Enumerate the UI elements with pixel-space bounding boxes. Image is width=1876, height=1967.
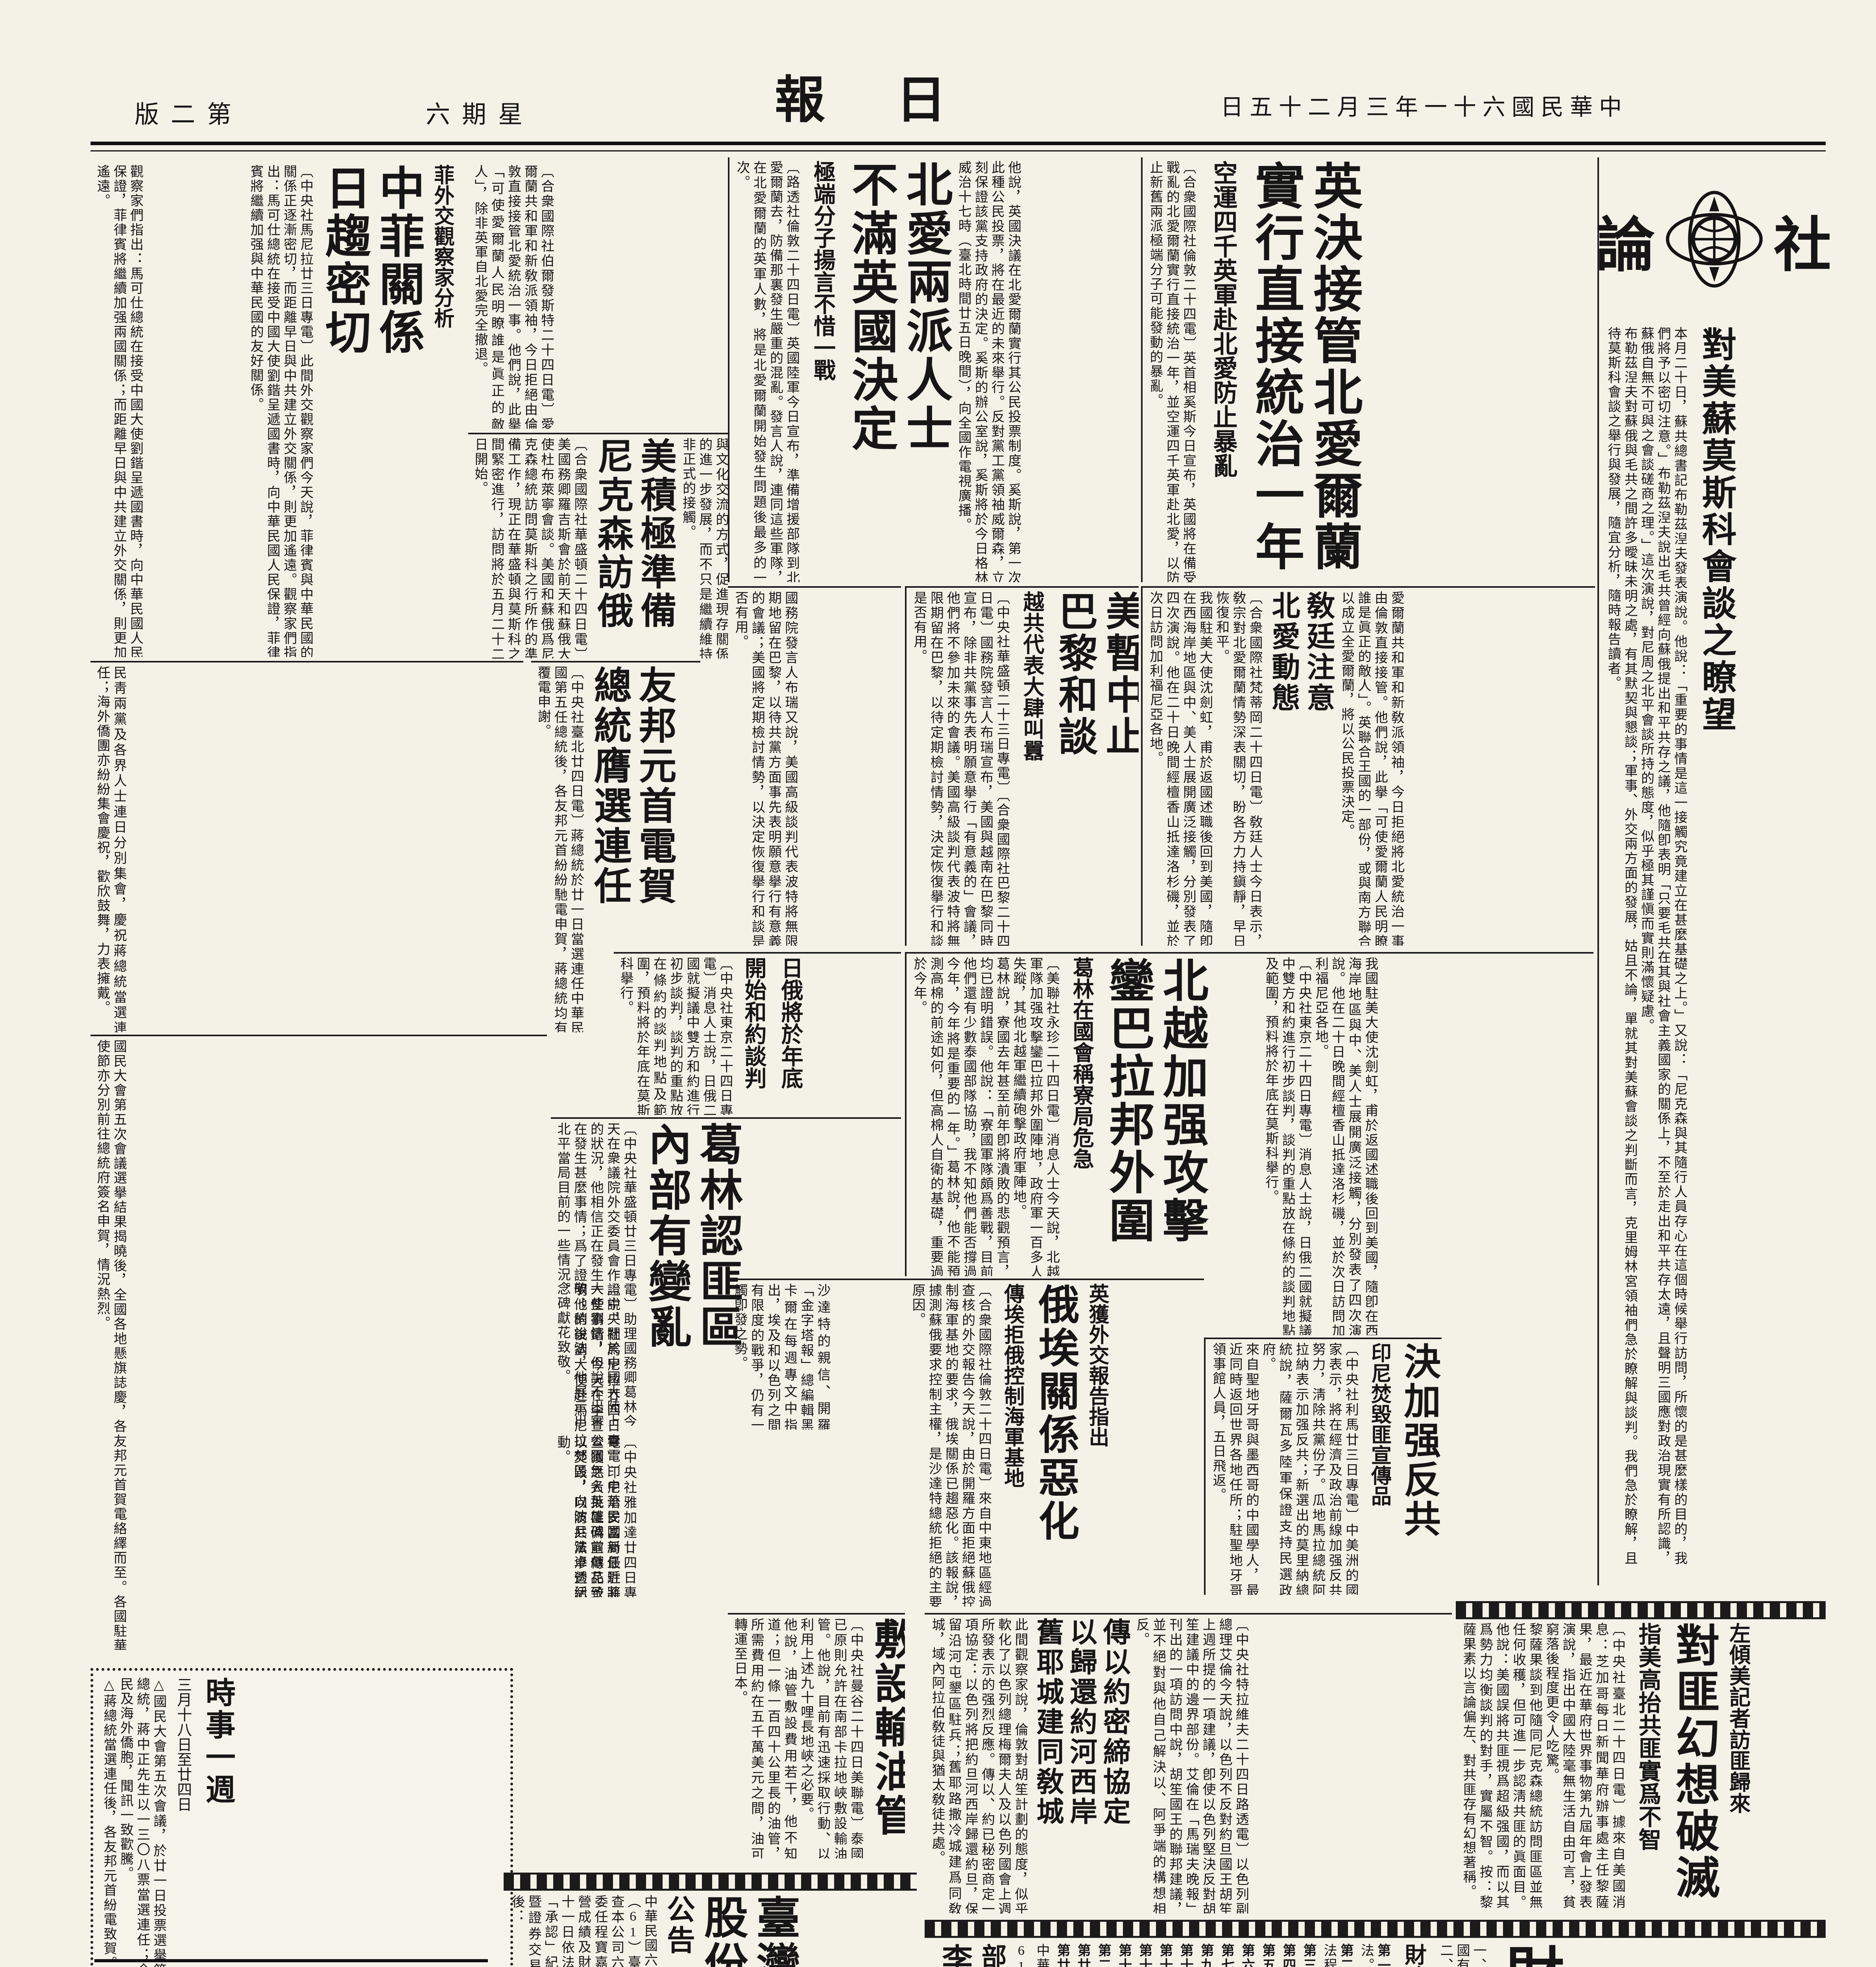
central-america-body: 〔中央社利馬廿三日專電〕中美洲的國家表示，將在經濟及政治前線加强反共努力，淸除共… xyxy=(1259,1342,1359,1595)
mof-article: 第二條 本辦法所稱被人使用之國有房地產，係指財產類別列爲非公用財產，於國產局成立… xyxy=(1320,1943,1353,1967)
disillusion-kicker: 左傾美記者訪匪歸來 xyxy=(1723,1622,1754,1910)
congrats-body: 〔中央社臺北廿四日電〕蔣總統於廿一日當選連任中華民國第五任總統後，各友邦元首紛紛… xyxy=(534,666,584,1032)
paris-continuation: 國務院發言人布瑞又說，美國高級談判代表波特將無限期地留在巴黎，以待共黨方面事先表… xyxy=(728,586,901,946)
disillusion-subheadline: 指美高抬共匪實爲不智 xyxy=(1631,1622,1664,1910)
laos-subheadline: 葛林在國會稱寮局危急 xyxy=(1066,957,1097,1276)
mof-article: 第廿一條 各級考核地方，其他提前辦理完畢者，由國產局列入管制。 xyxy=(1074,1943,1091,1967)
central-america-headline-line2: 決加强反共 xyxy=(1399,1342,1438,1595)
mof-article: 第十八條 被人使用之國有房地產，分別應於本辦法施行後二年內淸理通知完畢。 xyxy=(1136,1943,1152,1967)
week-item: △蔣總統當選連任後，各友邦元首紛電致賀。 xyxy=(100,1677,117,1967)
mof-article-number: 第四條 xyxy=(1281,1943,1295,1967)
mof-greek-band xyxy=(925,1920,1826,1938)
mof-minister-name: 李國鼎 xyxy=(939,1943,971,1967)
editorial-logo-char-right: 社 xyxy=(1774,197,1830,283)
mof-article: 第十六條 各級地方政府提前辦理完成者，應照前項規定公告辦理。 xyxy=(1177,1943,1193,1967)
phil-left-text: 觀察家們指出：馬可仕總統在接受中國大使劉鍇呈遞國書時，向中華民國人民保證，菲律賓… xyxy=(94,164,143,657)
phil-body-continued: 觀察家們說：菲律賓政府在它發表的新聞公報中，强調呈遞國書儀式中總統的保證，顯示菲… xyxy=(679,437,728,659)
central-america-subheadline: 印尼焚毀匪宣傳品 xyxy=(1364,1342,1394,1595)
laos-body-more: 葛林說，寮國去年甚至前年卽將潰敗的悲觀預言，均已證明錯誤。他說：「寮國軍隊頗爲善… xyxy=(910,957,1010,1276)
shen-west-coast-column: 我國駐美大使沈劍虹，甫於返國述職後回到美國，隨卽在西海岸地區與中、美人士展開廣泛… xyxy=(1259,952,1593,1335)
main-subheadline: 空運四千英軍赴北愛防止暴亂 xyxy=(1205,161,1240,582)
mof-article-number: 第廿二條 xyxy=(1055,1943,1069,1967)
central-america-more: 來自聖地牙哥與墨西哥的中國學人，最近同時返回世界各地任所；駐聖地牙哥領事館人員，… xyxy=(1209,1342,1259,1595)
japan-ussr-headline-line1: 日俄將於年底 xyxy=(774,957,806,1115)
soviet-egypt-body: 〔合衆國際社倫敦二十四日電〕來自中東地區經過查核的外交報告今天說，由於開羅方面拒… xyxy=(909,1283,992,1607)
belfast-subheadline: 極端分子揚言不惜一戰 xyxy=(807,161,839,582)
japan-ussr-body: 〔中央社東京二十四日專電〕消息人士說，日俄二國就擬議中雙方和約進行初步談判，談判… xyxy=(617,957,733,1115)
israel-body-more: 此間觀察家說，倫敦對胡笙計劃的態度，似乎軟化了以色列總理梅爾夫人及以色列國會上週… xyxy=(929,1618,1028,1913)
soviet-egypt-headline: 俄埃關係惡化 xyxy=(1033,1283,1076,1607)
paris-subheadline: 越共代表大肆叫囂 xyxy=(1016,591,1047,946)
japan-ussr-headline-line2: 開始和約談判 xyxy=(738,957,770,1115)
phil-headline-line2: 日趨密切 xyxy=(320,164,367,657)
nixon-headline-line2: 尼克森訪俄 xyxy=(593,437,631,659)
weekday-label: 六期星 xyxy=(401,94,559,130)
mof-article: 第四條 都市計劃範圍內被人使用之房地，應於本辦法施行後一年內淸理通知完畢。 xyxy=(1280,1943,1296,1967)
mof-intro-2: 二、茲將該辦法公布周知。（辦法如附件） xyxy=(1437,1943,1453,1967)
main-body-continued: 他說，英國決議在北愛爾蘭實行其公民投票制度。奚斯說，第一次此種公民投票，將在最近… xyxy=(955,161,1021,582)
mof-article-number: 第九條 xyxy=(1198,1943,1213,1967)
date-line: 日五十二月三年一十六國民華中 xyxy=(1023,89,1826,132)
laos-body: 〔美聯社永珍二十四日電〕消息人士今天說，北越軍隊加强攻擊鑾巴拉邦外圍陣地，政府軍… xyxy=(1010,957,1060,1276)
story-japan-ussr: 日俄將於年底 開始和約談判 〔中央社東京二十四日專電〕消息人士說，日俄二國就擬議… xyxy=(614,952,901,1115)
phil-kicker: 菲外交觀察家分析 xyxy=(427,164,457,657)
vatican-headline-line2: 北愛動態 xyxy=(1268,591,1298,946)
editorial-body: 本月二十日，蘇共總書記布勒茲湼夫發表演說。他說：「重要的事情是這一接觸究竟建立在… xyxy=(1638,327,1687,1566)
mof-article-number: 第六條 xyxy=(1240,1943,1254,1967)
nixon-headline-line1: 美積極準備 xyxy=(636,437,674,659)
vatican-headline-line1: 敎廷注意 xyxy=(1303,591,1333,946)
paris-body: 〔中央社華盛頓二十三日專電〕〔合衆國際社巴黎二十四日電〕國務院發言人布瑞宣布，美… xyxy=(910,591,1010,946)
philippines-left-column: 觀察家們指出：馬可仕總統在接受中國大使劉鍇呈遞國書時，向中華民國人民保證，菲律賓… xyxy=(90,161,240,657)
mof-title: 財政部公告 xyxy=(1498,1943,1559,1967)
soviet-egypt-subheadline: 傳埃拒俄控制海軍基地 xyxy=(997,1283,1027,1607)
week-item: △國民大會第五次會議，於廿一日投票選擧第五任總統，蔣中正先生以一三〇八票當選連任… xyxy=(117,1677,166,1967)
editorial-block: 社 論 對美蘇莫斯科會談之瞭望 本月二十日，蘇共總書記布勒茲湼夫發表演說。他說：… xyxy=(1597,157,1830,1585)
week-review-box: 時事一週 三月十八日至廿四日 △國民大會第五次會議，於廿一日投票選擧第五任總統，… xyxy=(90,1668,513,1967)
shen-ambassador-note: 我國駐美大使沈劍虹，甫於返國述職後回到美國，隨卽在西海岸地區與中、美人士展開廣泛… xyxy=(1147,591,1213,946)
soviet-egypt-more-text: 沙達特的親信、開羅「金字塔報」總編輯黑卡爾在每週專文中指出，埃及和以色列之間有限… xyxy=(731,1283,831,1430)
mof-date: 中華民國六十一年三月二十四日 xyxy=(1033,1943,1050,1967)
edition-label: 版二第 xyxy=(98,94,279,130)
mof-article: 第一條 財政部爲淸理國有財產局（以下簡稱國產局）成立前被人使用之國有房地產，特訂… xyxy=(1357,1943,1390,1967)
mof-article-number: 第二十條 xyxy=(1096,1943,1110,1967)
mof-article-number: 第三條 xyxy=(1301,1943,1316,1967)
story-belfast: 他說，英國決議在北愛爾蘭實行其公民投票制度。奚斯說，第一次此種公民投票，將在最近… xyxy=(728,157,1139,582)
week-range: 三月十八日至廿四日 xyxy=(172,1677,194,1967)
pipeline-body: 〔中央社曼谷二十四日美聯電〕泰國已原則允許在南部卡拉地峽敷設輸油管。他說，目前有… xyxy=(798,1618,864,1858)
paris-continuation-text: 國務院發言人布瑞又說，美國高級談判代表波特將無限期地留在巴黎，以待共黨方面事先表… xyxy=(732,591,798,946)
phil-body: 〔中央社馬尼拉廿三日專電〕此間外交觀察家們今天說，菲律賓與中華民國的關係正逐漸密… xyxy=(247,164,314,657)
liu-ambassador-column: 〔中央社馬尼拉廿四日專電〕中華民國新任駐菲大使劉鍇，今天在李查公園無名英雄碑前獻… xyxy=(551,1279,724,1597)
mof-law-title: 財政部國有財產局成立前被人使用之國有房地產淸理辦法 xyxy=(1398,1943,1430,1967)
editorial-logo: 社 論 xyxy=(1599,157,1830,323)
laos-headline-line1: 北越加强攻擊 xyxy=(1157,957,1205,1276)
editorial-title: 對美蘇莫斯科會談之瞭望 xyxy=(1698,327,1734,1566)
tpc-notice-date: 中華民國六十一年三月二十四日 xyxy=(641,1895,657,1967)
bottom-left-columns: 國民大會第五次會議選擧結果揭曉後，全國各地懸旗誌慶，各友邦元首賀電絡繹而至。各國… xyxy=(90,1035,547,1650)
mof-article-number: 第十八條 xyxy=(1137,1943,1152,1967)
liu-ambassador-text: 〔中央社馬尼拉廿四日專電〕中華民國新任駐菲大使劉鍇，今天在李查公園無名英雄碑前獻… xyxy=(554,1282,620,1597)
mof-minister-title: 部長 xyxy=(979,1943,1005,1967)
mof-article: 第三條 被人使用之國有房地產，應分別依本辦法規定淸理，並由國產局列入管制，跟蹤淸… xyxy=(1300,1943,1317,1967)
mof-article-number: 第七條 xyxy=(1219,1943,1233,1967)
mof-article: 第九條 使用人未按限期進度淸理者，從嚴懲處，分別應於淸理期限內辦理完畢。 xyxy=(1197,1943,1214,1967)
main-headline-line2: 實行直接統治一年 xyxy=(1249,161,1300,582)
congrats-continuation-text: 民靑兩黨及各界人士連日分別集會，慶祝蔣總統當選連任；海外僑團亦紛紛集會慶祝，歡欣… xyxy=(94,666,127,1032)
story-disillusion: 左傾美記者訪匪歸來 對匪幻想破滅 指美高抬共匪實爲不智 〔中央社臺北二十四日電〕… xyxy=(1456,1601,1826,1912)
mof-article-number: 第一條 xyxy=(1376,1943,1390,1967)
paris-headline-line2: 巴黎和談 xyxy=(1054,591,1095,946)
mof-article-number: 第五條 xyxy=(1260,1943,1275,1967)
tpc-company-name-1: 臺灣塑膠工業股份有限公司 xyxy=(94,1959,488,1967)
mof-article-number: 第廿一條 xyxy=(1075,1943,1090,1967)
story-nixon-ussr: 觀察家們說：菲律賓政府在它發表的新聞公報中，强調呈遞國書儀式中總統的保證，顯示菲… xyxy=(468,433,728,659)
week-title: 時事一週 xyxy=(202,1677,233,1967)
story-philippines: 菲外交觀察家分析 中菲關係 日趨密切 〔中央社馬尼拉廿三日專電〕此間外交觀察家們… xyxy=(244,161,464,657)
masthead-rule-thin xyxy=(90,150,1826,151)
publication-date: 日五十二月三年一十六國民華中 xyxy=(1023,89,1826,122)
mof-articles: 第一條 財政部爲淸理國有財產局（以下簡稱國產局）成立前被人使用之國有房地產，特訂… xyxy=(1054,1943,1391,1967)
mof-article-number: 第十九條 xyxy=(1117,1943,1131,1967)
mof-article: 第二十條 本辦法所稱被人使用之國有房地產，其淸理得由國產局自公布日分期實施。 xyxy=(1095,1943,1111,1967)
shen-column-text: 我國駐美大使沈劍虹，甫於返國述職後回到美國，隨卽在西海岸地區與中、美人士展開廣泛… xyxy=(1312,957,1378,1335)
israel-headline-line2: 以歸還約河西岸 xyxy=(1066,1618,1095,1913)
bottom-left-text: 國民大會第五次會議選擧結果揭曉後，全國各地懸旗誌慶，各友邦元首賀電絡繹而至。各國… xyxy=(94,1039,127,1650)
mof-article-number: 第十七條 xyxy=(1158,1943,1172,1967)
vatican-body: 〔合衆國際社梵蒂岡二十四日電〕敎廷人士今日表示，敎宗對北愛爾蘭情勢深表關切，盼各… xyxy=(1213,591,1263,946)
editorial-globe-icon xyxy=(1665,190,1763,290)
greek-key-band xyxy=(1456,1601,1826,1619)
editorial-body-more: 布勒茲湼夫對蘇俄與毛共之間許多曖昧未明之處，有其默契與懇談；軍事、外交兩方面的發… xyxy=(1605,327,1638,1566)
mof-article: 第七條 未經合法程序使用之非公用房地產，使用人應優先按規定申購。 xyxy=(1218,1943,1234,1967)
nixon-body: 〔合衆國際社華盛頓二十四日電〕美國務卿羅吉斯會於前天和蘇俄大使杜布萊寧會談。美國… xyxy=(471,437,587,659)
masthead-title: 報 日 央 中 xyxy=(720,59,1011,138)
tpc-notice-body: 查本公司六十年度財務報告業經編造完竣，除已委任程寶嘉會計師查核證明，足以表示該年… xyxy=(508,1895,624,1967)
tpc-notice-title-line1: 臺灣塑膠工業 xyxy=(751,1895,797,1967)
main-headline-line1: 英決接管北愛爾蘭 xyxy=(1307,161,1358,582)
story-central-america: 中美洲各國 決加强反共 印尼焚毀匪宣傳品 〔中央社利馬廿三日專電〕中美洲的國家表… xyxy=(1204,1338,1442,1595)
disillusion-more: 黎薩果談到他隨同尼克森總統訪問匪區並無任何收穫，但可進一步認淸共匪的眞面目。他說… xyxy=(1460,1622,1543,1910)
soviet-egypt-kicker: 英獲外交報告指出 xyxy=(1082,1283,1112,1607)
newspaper-page: 日五十二月三年一十六國民華中 報 日 央 中 六期星 版二第 社 論 xyxy=(0,0,1876,1967)
belfast-wire-column: 〔合衆國際社伯爾發斯特二十四日電〕愛爾蘭共和軍和新敎派領袖，今日拒絕由倫敦直接接… xyxy=(468,161,728,429)
story-pipeline: 泰允在卡拉地峽 敷設輸油管 〔中央社曼谷二十四日美聯電〕泰國已原則允許在南部卡拉… xyxy=(728,1613,905,1858)
mof-article-number: 第二條 xyxy=(1338,1943,1353,1967)
japan-ussr-wire-text: 〔中央社東京二十四日專電〕消息人士說，日俄二國就擬議中雙方和約進行初步談判，談判… xyxy=(1262,957,1312,1335)
pipeline-headline: 敷設輸油管 xyxy=(869,1618,905,1858)
tpc-notice-ref: （61）臺塑總經字第〇三四二號 xyxy=(624,1895,641,1967)
tpc-income-statement: 臺灣塑膠工業股份有限公司 損 益 表 60年1月1日至60年12月31日 單位：… xyxy=(94,1959,488,1967)
mof-ref: 61．3．24（二）財臺財產字第11627號 xyxy=(1013,1943,1029,1967)
tpc-notice: 臺灣塑膠工業 股份有限公司 公告 中華民國六十一年三月二十四日 （61）臺塑總經… xyxy=(504,1873,917,1967)
week-items: △國民大會第五次會議，於廿一日投票選擧第五任總統，蔣中正先生以一三〇八票當選連任… xyxy=(100,1677,167,1967)
story-main: 英決接管北愛爾蘭 實行直接統治一年 空運四千英軍赴北愛防止暴亂 〔合衆國際社倫敦… xyxy=(1141,157,1595,582)
israel-headline-line1: 傳以約密締協定 xyxy=(1100,1618,1128,1913)
main-body: 〔合衆國際社倫敦二十四電〕英首相奚斯今日宣布，英國將在備受戰亂的北愛爾蘭實行直接… xyxy=(1147,161,1196,582)
mof-article: 第六條 售與使用人之國有房地產，其價款繳納辦法，由國產局訂定之。 xyxy=(1238,1943,1255,1967)
disillusion-body: 〔中央社臺北二十四日電〕據來自美國消息：芝加哥每日新聞華府辦事處主任黎薩果，最近… xyxy=(1543,1622,1626,1910)
tpc-notice-title-line3: 公告 xyxy=(663,1895,692,1967)
story-paris: 美暫中止 巴黎和談 越共代表大肆叫囂 〔中央社華盛頓二十三日專電〕〔合衆國際社巴… xyxy=(905,586,1139,946)
editorial-logo-char-left: 論 xyxy=(1597,197,1655,283)
phil-headline-line1: 中菲關係 xyxy=(373,164,421,657)
laos-headline-line2: 鑾巴拉邦外圍 xyxy=(1103,957,1151,1276)
paris-headline-line1: 美暫中止 xyxy=(1101,591,1139,946)
mof-notice: 財政部公告 一、奉行政院六十一年三月七日臺六十一財二一〇三號令，以「財政部國有財… xyxy=(925,1920,1826,1967)
israel-body: 〔中央社特拉維夫二十四日路透電〕以色列副總理艾倫今天說，以色列不反對約旦國王胡笙… xyxy=(1133,1618,1249,1913)
weekday: 六期星 xyxy=(401,94,559,134)
mof-article: 第五條 都市計劃範圍外被人使用之房地，應於本辦法施行後二年內淸理通知完畢。 xyxy=(1259,1943,1276,1967)
mof-article-number: 第十六條 xyxy=(1178,1943,1193,1967)
disillusion-headline: 對匪幻想破滅 xyxy=(1671,1622,1716,1910)
mof-article: 第十七條 考核各級地方財產淸理，得比照本辦法之規定辦理。 xyxy=(1156,1943,1173,1967)
pipeline-more: 他說，油管敷設費用若干，他不知道；但一條一百四十公里長的油管，所需費用約在五千萬… xyxy=(731,1618,798,1858)
belfast-headline-line2: 不滿英國決定 xyxy=(846,161,894,582)
mof-intro-1: 一、奉行政院六十一年三月七日臺六十一財二一〇三號令，以「財政部國有財產局成立前被… xyxy=(1453,1943,1486,1967)
tpc-notice-title-line2: 股份有限公司 xyxy=(699,1895,744,1967)
belfast-body: 〔路透社倫敦二十四日電〕英國陸軍今日宣布，準備增援部隊到北愛爾蘭去，防備那裏發生… xyxy=(733,161,800,582)
tpc-notice-band xyxy=(504,1873,917,1891)
israel-headline-line3: 舊耶城建同敎城 xyxy=(1033,1618,1062,1913)
story-vatican: 愛爾蘭共和軍和新敎派領袖，今日拒絕將北愛統治一事由倫敦直接接管。他們說，此擧「可… xyxy=(1141,586,1595,946)
soviet-egypt-continuation: 沙達特的親信、開羅「金字塔報」總編輯黑卡爾在每週專文中指出，埃及和以色列之間有限… xyxy=(728,1279,905,1430)
mof-article: 第廿二條 本辦法自公布日施行。 xyxy=(1054,1943,1070,1967)
belfast-headline-line1: 北愛兩派人士 xyxy=(900,161,949,582)
belfast-wire-text: 〔合衆國際社伯爾發斯特二十四日電〕愛爾蘭共和軍和新敎派領袖，今日拒絕由倫敦直接接… xyxy=(471,164,554,429)
masthead-rule-heavy xyxy=(90,142,1826,145)
masthead: 報 日 央 中 xyxy=(720,59,1011,138)
story-laos: 北越加强攻擊 鑾巴拉邦外圍 葛林在國會稱寮局危急 〔美聯社永珍二十四日電〕消息人… xyxy=(905,952,1261,1276)
story-israel: 〔中央社特拉維夫二十四日路透電〕以色列副總理艾倫今天說，以色列不反對約旦國王胡笙… xyxy=(925,1613,1452,1913)
story-soviet-egypt: 英獲外交報告指出 俄埃關係惡化 傳埃拒俄控制海軍基地 〔合衆國際社倫敦二十四日電… xyxy=(905,1279,1204,1607)
mof-article: 第十九條 國產局對前條所定淸理事項，應按期列管，通知完畢。 xyxy=(1115,1943,1132,1967)
congrats-continuation: 民靑兩黨及各界人士連日分別集會，慶祝蔣總統當選連任；海外僑團亦紛紛集會慶祝，歡欣… xyxy=(90,661,523,1032)
belfast-body-continued: 愛爾蘭共和軍和新敎派領袖，今日拒絕將北愛統治一事由倫敦直接接管。他們說，此擧「可… xyxy=(1338,591,1405,946)
edition: 版二第 xyxy=(98,94,279,134)
